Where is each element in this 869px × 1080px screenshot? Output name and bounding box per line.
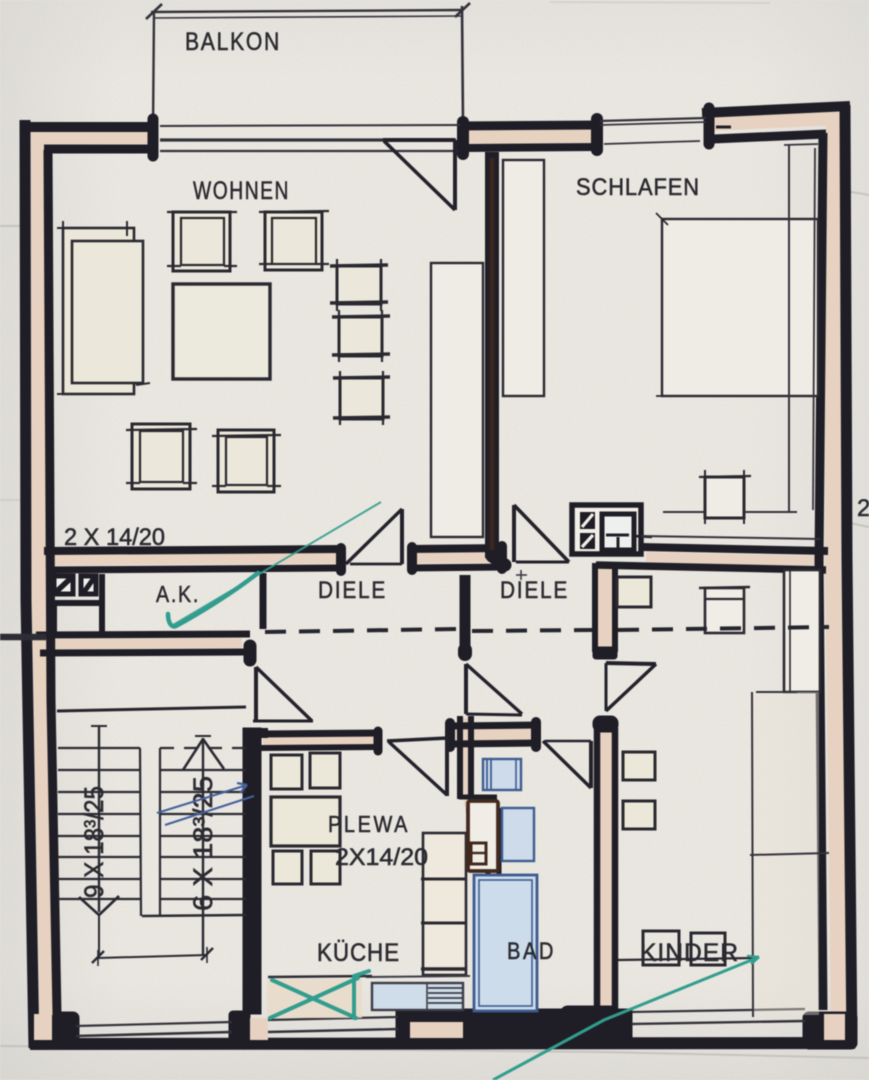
svg-text:DIELE: DIELE [318, 577, 387, 604]
svg-text:KÜCHE: KÜCHE [317, 939, 400, 967]
svg-text:2: 2 [857, 495, 869, 522]
svg-text:SCHLAFEN: SCHLAFEN [576, 174, 700, 201]
svg-text:9 X 18³/25: 9 X 18³/25 [79, 786, 109, 898]
svg-text:BALKON: BALKON [185, 28, 281, 56]
svg-text:2 X 14/20: 2 X 14/20 [64, 524, 165, 551]
svg-text:PLEWA: PLEWA [328, 811, 410, 837]
svg-text:2X14/20: 2X14/20 [335, 844, 428, 871]
svg-text:KINDER: KINDER [640, 939, 739, 967]
svg-text:BAD: BAD [507, 938, 556, 965]
svg-text:A.K.: A.K. [156, 581, 200, 607]
svg-text:DIELE: DIELE [500, 577, 569, 604]
svg-text:WOHNEN: WOHNEN [193, 177, 290, 205]
